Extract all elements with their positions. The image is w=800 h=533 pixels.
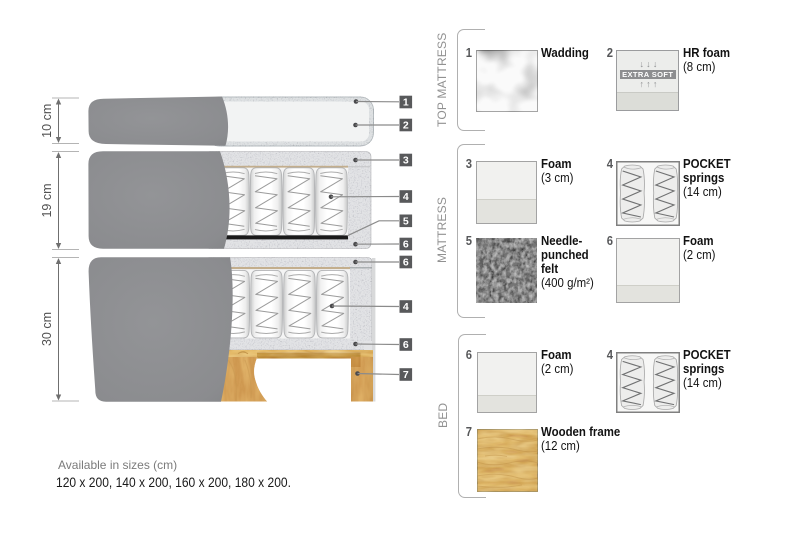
svg-text:30 cm: 30 cm [40, 312, 54, 346]
svg-text:6: 6 [403, 257, 409, 269]
svg-text:1: 1 [403, 97, 409, 109]
svg-text:4: 4 [403, 301, 409, 313]
svg-text:7: 7 [403, 369, 409, 381]
svg-text:6: 6 [403, 339, 409, 351]
svg-text:10 cm: 10 cm [40, 104, 54, 138]
svg-text:4: 4 [403, 191, 409, 203]
svg-text:6: 6 [403, 239, 409, 251]
svg-text:19 cm: 19 cm [40, 183, 54, 217]
svg-text:2: 2 [403, 120, 409, 132]
svg-text:3: 3 [403, 155, 409, 167]
svg-text:5: 5 [403, 215, 409, 227]
